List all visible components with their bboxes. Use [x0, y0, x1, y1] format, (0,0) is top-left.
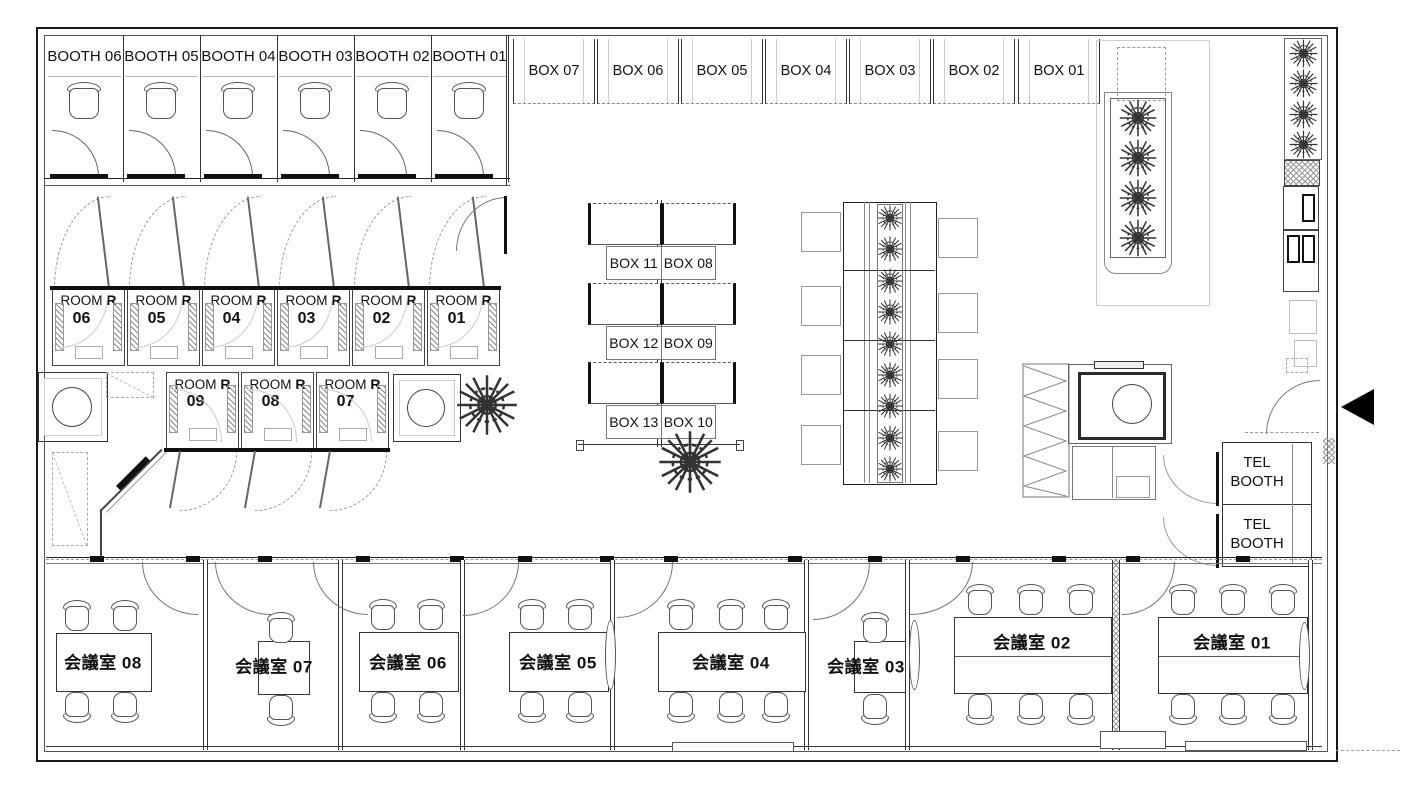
- chair-icon: [416, 691, 446, 723]
- storage-cabinet: [661, 362, 736, 404]
- storage-cabinet: [588, 283, 663, 325]
- round-table: [1112, 384, 1152, 424]
- room-r-08: ROOM R 08: [241, 372, 314, 450]
- chair-icon: [62, 600, 92, 632]
- plant-icon: [877, 393, 903, 419]
- wall: [275, 286, 351, 290]
- room-r-05: ROOM R 05: [127, 288, 200, 366]
- equipment-box: [1284, 160, 1320, 186]
- chair-icon: [666, 691, 696, 723]
- door-frame: [1236, 556, 1250, 562]
- cabinet: [1283, 230, 1319, 292]
- box-01: BOX 01: [1018, 39, 1100, 104]
- room-r-02: ROOM R 02: [352, 288, 425, 366]
- plant-icon: [1289, 130, 1318, 159]
- storage-cabinet: [661, 203, 736, 245]
- chair-icon: [1168, 584, 1198, 616]
- storage-cabinet: [588, 203, 663, 245]
- cabinet: [672, 742, 794, 752]
- door-swing: [59, 295, 108, 348]
- desk: [339, 428, 367, 441]
- door-arc: [52, 130, 99, 177]
- meeting-room-label: 会議室 03: [827, 653, 905, 678]
- chair-icon: [761, 691, 791, 723]
- door-frame: [868, 556, 882, 562]
- cabinet: [1185, 741, 1307, 751]
- desk-line: [48, 76, 121, 77]
- chair-icon: [761, 599, 791, 631]
- plant-icon: [877, 268, 903, 294]
- room-r-06: ROOM R 06: [52, 288, 125, 366]
- box-label: BOX 06: [598, 63, 678, 79]
- booth-label: BOOTH 03: [277, 48, 354, 65]
- tel-booth-label: TEL BOOTH: [1222, 442, 1292, 503]
- chair-icon: [143, 82, 179, 120]
- door-arc: [360, 130, 407, 177]
- booth-label: BOOTH 02: [354, 48, 431, 65]
- chair-icon: [1268, 693, 1298, 725]
- partition-wall: [1112, 560, 1120, 750]
- chair-icon: [110, 600, 140, 632]
- plant-icon: [658, 430, 722, 494]
- device-icon: [1287, 235, 1300, 263]
- meeting-room-label: 会議室 08: [64, 649, 142, 674]
- floor-mark: [1289, 300, 1317, 334]
- partition-wall: [203, 560, 208, 750]
- shelf-zigzag-icon: [1022, 363, 1070, 498]
- box-label: BOX 04: [766, 63, 846, 79]
- door-frame: [518, 556, 532, 562]
- chair-icon: [965, 693, 995, 725]
- storage-cabinet: [588, 362, 663, 404]
- room-r-07: ROOM R 07: [316, 372, 389, 450]
- storage-label-band: BOX 11 BOX 08: [606, 246, 716, 280]
- box-06: BOX 06: [597, 39, 679, 104]
- chair-icon: [860, 693, 890, 725]
- stool-icon: [801, 212, 841, 252]
- pantry-top-bar: [1094, 361, 1144, 369]
- desk: [75, 346, 103, 359]
- chair-icon: [565, 599, 595, 631]
- chair-icon: [1016, 584, 1046, 616]
- cabinet: [1100, 731, 1166, 749]
- door-swing: [434, 295, 483, 348]
- table-line: [905, 202, 906, 483]
- round-table: [407, 389, 445, 427]
- stool-icon: [801, 286, 841, 326]
- box-label: BOX 03: [850, 63, 930, 79]
- door-swing: [209, 295, 258, 348]
- desk-line: [356, 76, 429, 77]
- meeting-room-label: 会議室 07: [235, 653, 313, 678]
- plant-icon: [1289, 39, 1318, 68]
- chair-icon: [374, 82, 410, 120]
- plant-icon: [1289, 100, 1318, 129]
- meeting-room-label: 会議室 05: [519, 649, 597, 674]
- stool-icon: [801, 355, 841, 395]
- desk-line: [202, 76, 275, 77]
- round-table: [52, 387, 92, 427]
- booth-01: BOOTH 01: [431, 35, 509, 182]
- wall: [1292, 444, 1293, 564]
- chair-icon: [517, 691, 547, 723]
- plant-icon: [877, 331, 903, 357]
- room-r-04: ROOM R 04: [202, 288, 275, 366]
- chair-icon: [220, 82, 256, 120]
- planter: [1110, 98, 1166, 258]
- device-icon: [1302, 235, 1315, 263]
- door-arc: [129, 130, 176, 177]
- meeting-room-label: 会議室 02: [993, 629, 1071, 654]
- chair-icon: [368, 691, 398, 723]
- box-label: BOX 02: [934, 63, 1014, 79]
- planter: [1284, 38, 1322, 160]
- table-line: [910, 202, 911, 483]
- equipment-hatch: [113, 303, 122, 351]
- stool-icon: [938, 218, 978, 258]
- chair-icon: [66, 82, 102, 120]
- plant-icon: [456, 374, 518, 436]
- chair-icon: [266, 612, 296, 644]
- door-frame: [1052, 556, 1066, 562]
- desk-line: [279, 76, 352, 77]
- wall: [100, 509, 102, 562]
- chair-icon: [965, 584, 995, 616]
- door-arc: [437, 130, 484, 177]
- chair-icon: [62, 691, 92, 723]
- chair-icon: [1218, 693, 1248, 725]
- storage-label: BOX 09: [662, 335, 716, 351]
- plant-icon: [1289, 69, 1318, 98]
- wall-monitor: [909, 620, 920, 690]
- booth-06: BOOTH 06: [46, 35, 124, 182]
- booth-02: BOOTH 02: [354, 35, 432, 182]
- plant-icon: [1119, 219, 1157, 257]
- wall: [425, 286, 501, 290]
- plant-icon: [877, 362, 903, 388]
- box-07: BOX 07: [513, 39, 595, 104]
- chair-icon: [1016, 693, 1046, 725]
- box-04: BOX 04: [765, 39, 847, 104]
- door-swing: [134, 295, 183, 348]
- plant-icon: [877, 425, 903, 451]
- equipment-hatch: [413, 303, 422, 351]
- equipment-hatch: [263, 303, 272, 351]
- chair-icon: [1218, 584, 1248, 616]
- desk: [375, 346, 403, 359]
- chair-icon: [716, 599, 746, 631]
- chair-icon: [110, 691, 140, 723]
- door-frame: [788, 556, 802, 562]
- wall: [1323, 438, 1335, 464]
- stool-icon: [938, 293, 978, 333]
- meeting-room-label: 会議室 06: [369, 649, 447, 674]
- plant-icon: [1119, 179, 1157, 217]
- desk: [264, 428, 292, 441]
- wall: [200, 286, 276, 290]
- entrance-door-chord: [1245, 432, 1319, 433]
- chair-icon: [297, 82, 333, 120]
- chair-icon: [266, 694, 296, 726]
- equipment-hatch: [227, 385, 236, 433]
- storage-cabinet: [661, 283, 736, 325]
- meeting-room-label: 会議室 01: [1193, 629, 1271, 654]
- office-floorplan: BOOTH 06 BOOTH 05 BOOTH 04 BOOTH 03 BOOT…: [0, 0, 1416, 788]
- chair-icon: [1066, 693, 1096, 725]
- plant-icon: [1119, 99, 1157, 137]
- chair-icon: [666, 599, 696, 631]
- equipment-hatch: [377, 385, 386, 433]
- box-03: BOX 03: [849, 39, 931, 104]
- table-line: [869, 202, 870, 483]
- storage-label-band: BOX 12 BOX 09: [606, 326, 716, 360]
- wall: [125, 286, 201, 290]
- stool-icon: [938, 431, 978, 471]
- desk: [450, 346, 478, 359]
- booth-label: BOOTH 06: [46, 48, 123, 65]
- desk: [189, 428, 217, 441]
- wall: [506, 35, 507, 186]
- plant-icon: [1119, 139, 1157, 177]
- chair-icon: [451, 82, 487, 120]
- desk: [150, 346, 178, 359]
- door-leaf: [504, 196, 507, 254]
- chair-icon: [517, 599, 547, 631]
- booth-04: BOOTH 04: [200, 35, 278, 182]
- chair-icon: [1168, 693, 1198, 725]
- planter: [877, 204, 903, 483]
- box-02: BOX 02: [933, 39, 1015, 104]
- storage-label: BOX 11: [607, 255, 661, 271]
- door-leaf: [1216, 452, 1219, 506]
- storage-label: BOX 08: [662, 255, 716, 271]
- door-arc: [283, 130, 330, 177]
- desk: [225, 346, 253, 359]
- cabinet: [1283, 186, 1319, 230]
- storage-label: BOX 12: [607, 335, 661, 351]
- stool-icon: [938, 359, 978, 399]
- wall: [736, 440, 744, 451]
- counter-divider: [1112, 446, 1113, 498]
- plant-icon: [877, 236, 903, 262]
- plant-icon: [877, 299, 903, 325]
- meeting-room-label: 会議室 04: [692, 649, 770, 674]
- chair-icon: [716, 691, 746, 723]
- wall-monitor: [605, 620, 616, 690]
- room-r-01: ROOM R 01: [427, 288, 500, 366]
- door-swing: [359, 295, 408, 348]
- chair-icon: [860, 612, 890, 644]
- door-arc: [206, 130, 253, 177]
- equipment-hatch: [488, 303, 497, 351]
- booth-05: BOOTH 05: [123, 35, 201, 182]
- door-swing: [284, 295, 333, 348]
- equipment-hatch: [338, 303, 347, 351]
- device-icon: [1302, 194, 1315, 222]
- box-label: BOX 05: [682, 63, 762, 79]
- wall: [44, 178, 510, 186]
- equipment-hatch: [188, 303, 197, 351]
- equipment-hatch: [302, 385, 311, 433]
- entrance-arrow-icon: [1341, 389, 1374, 425]
- chair-icon: [368, 599, 398, 631]
- plant-icon: [877, 205, 903, 231]
- box-label: BOX 07: [514, 63, 594, 79]
- chair-icon: [1268, 584, 1298, 616]
- table-line: [864, 202, 865, 483]
- storage-label: BOX 10: [662, 414, 716, 430]
- wall: [576, 440, 584, 451]
- desk-line: [125, 76, 198, 77]
- wall: [350, 286, 426, 290]
- room-r-09: ROOM R 09: [166, 372, 239, 450]
- tel-booth-label: TEL BOOTH: [1222, 504, 1292, 565]
- booth-label: BOOTH 05: [123, 48, 200, 65]
- desk: [300, 346, 328, 359]
- box-05: BOX 05: [681, 39, 763, 104]
- exterior-dash: [1336, 750, 1400, 751]
- plant-icon: [877, 456, 903, 482]
- wall: [50, 286, 126, 290]
- chair-icon: [565, 691, 595, 723]
- storage-label: BOX 13: [607, 414, 661, 430]
- stool-icon: [801, 425, 841, 465]
- desk-line: [433, 76, 506, 77]
- box-label: BOX 01: [1019, 63, 1099, 79]
- booth-03: BOOTH 03: [277, 35, 355, 182]
- chair-icon: [416, 599, 446, 631]
- chair-icon: [1066, 584, 1096, 616]
- utility-outline: [1286, 358, 1308, 373]
- room-r-03: ROOM R 03: [277, 288, 350, 366]
- door-frame: [90, 556, 104, 562]
- booth-label: BOOTH 01: [431, 48, 508, 65]
- counter-box: [1116, 476, 1150, 498]
- booth-label: BOOTH 04: [200, 48, 277, 65]
- wall-monitor: [1299, 622, 1310, 690]
